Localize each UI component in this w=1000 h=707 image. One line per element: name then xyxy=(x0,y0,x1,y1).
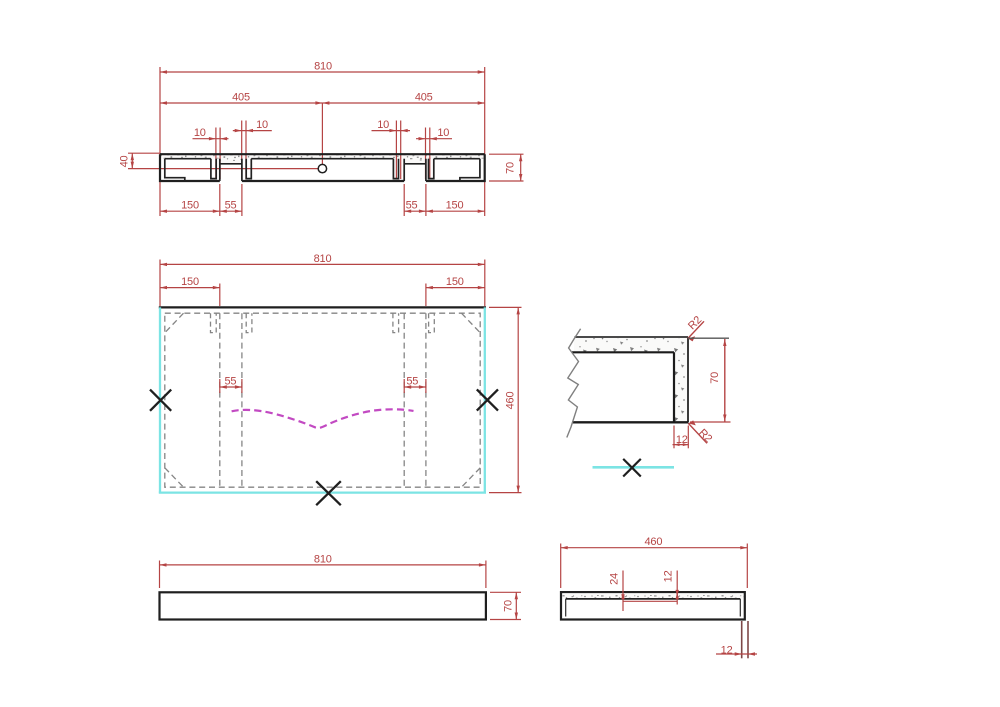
svg-text:150: 150 xyxy=(446,200,464,212)
svg-text:150: 150 xyxy=(181,276,199,288)
svg-text:150: 150 xyxy=(446,276,464,288)
svg-text:150: 150 xyxy=(181,200,199,212)
svg-text:405: 405 xyxy=(415,92,433,104)
svg-text:460: 460 xyxy=(504,392,516,410)
svg-text:12: 12 xyxy=(662,570,674,582)
svg-text:405: 405 xyxy=(232,92,250,104)
svg-text:810: 810 xyxy=(314,61,332,73)
svg-text:55: 55 xyxy=(406,376,418,388)
svg-text:55: 55 xyxy=(224,376,236,388)
svg-text:40: 40 xyxy=(119,156,131,168)
svg-text:55: 55 xyxy=(225,200,237,212)
svg-text:810: 810 xyxy=(314,253,332,265)
svg-text:10: 10 xyxy=(256,119,268,131)
svg-text:12: 12 xyxy=(721,644,733,656)
svg-text:70: 70 xyxy=(503,600,515,612)
svg-text:10: 10 xyxy=(377,119,389,131)
svg-text:810: 810 xyxy=(314,553,332,565)
svg-text:10: 10 xyxy=(194,127,206,139)
svg-text:12: 12 xyxy=(676,434,688,446)
svg-text:10: 10 xyxy=(437,127,449,139)
svg-text:70: 70 xyxy=(709,372,721,384)
svg-text:70: 70 xyxy=(504,162,516,174)
svg-text:24: 24 xyxy=(609,573,621,585)
svg-text:55: 55 xyxy=(406,200,418,212)
svg-text:460: 460 xyxy=(645,536,663,548)
